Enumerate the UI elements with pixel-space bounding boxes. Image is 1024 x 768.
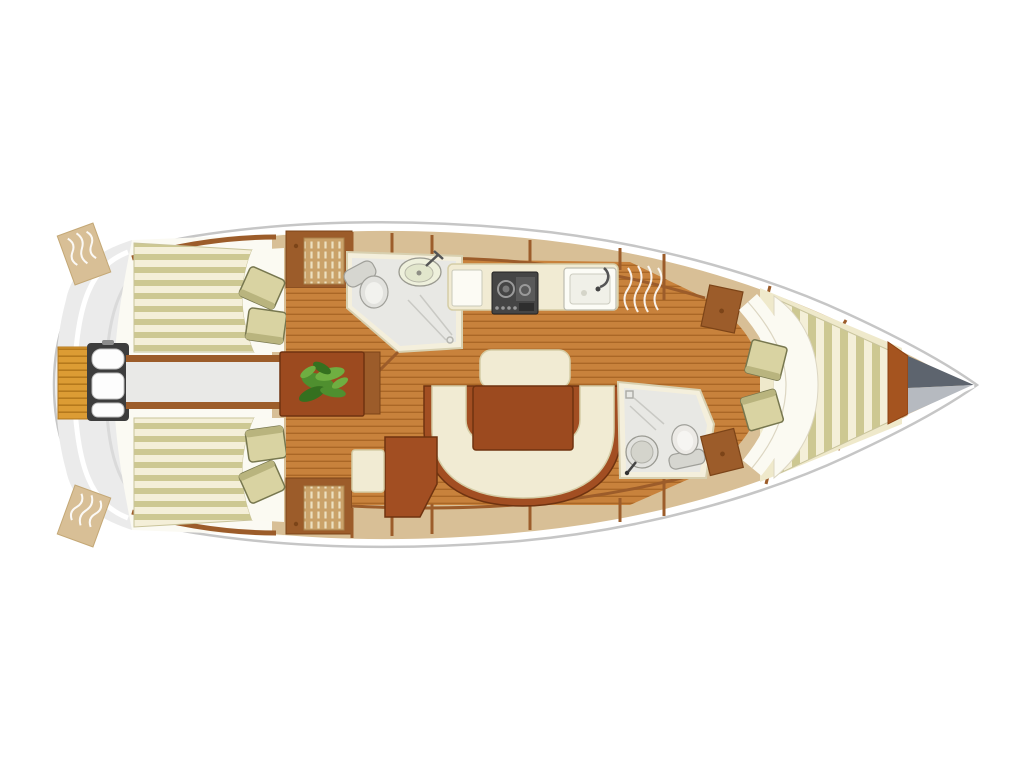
hatch-weave-bottom — [304, 486, 344, 530]
wheel-bottom — [92, 403, 124, 417]
compass-knob — [102, 340, 114, 345]
wheel-top — [92, 349, 124, 369]
bench-port — [134, 243, 254, 352]
galley-sink — [564, 268, 616, 310]
boat-floor-plan — [0, 0, 1024, 768]
settee-backrest — [480, 350, 570, 388]
aft-head — [618, 382, 714, 478]
companionway-steps-top — [286, 288, 352, 352]
bench-starboard — [134, 418, 254, 527]
wheel-hub — [92, 373, 124, 399]
helm-pedestal — [87, 340, 129, 421]
floor-plan-canvas — [0, 0, 1024, 768]
plant-table — [280, 352, 364, 416]
stove — [492, 272, 538, 314]
hatch-weave-top — [304, 238, 344, 284]
saloon-table — [473, 386, 573, 450]
companionway-steps-bottom — [286, 416, 352, 478]
icebox — [452, 270, 482, 306]
companionway-walkway — [126, 355, 286, 409]
nav-stool — [352, 450, 384, 492]
bow-bulkhead — [888, 342, 908, 424]
galley — [448, 264, 618, 314]
